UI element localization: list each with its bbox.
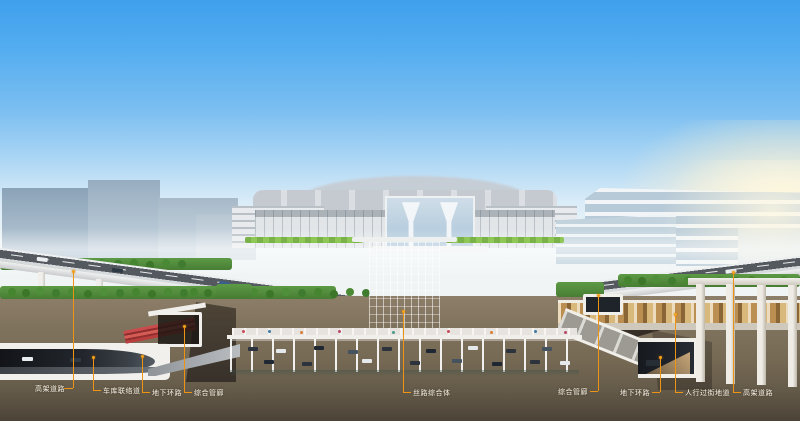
callout-line xyxy=(598,297,599,391)
callout-label: 人行过街地道 xyxy=(685,389,730,397)
utility-tunnel-box xyxy=(158,312,202,347)
callout-label: 地下环路 xyxy=(620,389,650,397)
green-roof xyxy=(245,237,363,243)
callout-label: 车库联络道 xyxy=(103,387,141,395)
callout-label: 高架道路 xyxy=(743,389,773,397)
callout-label: 地下环路 xyxy=(152,389,182,397)
callout-line xyxy=(403,392,411,393)
callout-line xyxy=(142,357,143,392)
underground-ring-road-tunnel xyxy=(0,343,170,380)
terraced-building-left xyxy=(239,237,369,334)
callout-line xyxy=(675,316,676,392)
glass-atrium xyxy=(369,242,440,334)
car-in-tunnel xyxy=(22,357,33,361)
underground-ring-road-tunnel-right xyxy=(638,338,698,378)
rendering-scene: 高架道路 车库联络道 地下环路 综合管廊 丝路综合体 综合管廊 地下环路 人行过… xyxy=(0,0,800,421)
callout-line xyxy=(184,327,185,392)
callout-line xyxy=(73,273,74,388)
callout-line xyxy=(142,392,150,393)
car-in-tunnel xyxy=(70,358,81,362)
callout-line xyxy=(652,392,660,393)
callout-label: 丝路综合体 xyxy=(413,389,451,397)
callout-label: 高架道路 xyxy=(35,385,65,393)
viaduct-pier xyxy=(696,284,705,382)
callout-line xyxy=(733,274,734,392)
viaduct-pier xyxy=(757,285,766,385)
callout-line xyxy=(590,391,598,392)
callout-label: 综合管廊 xyxy=(558,388,588,396)
terraced-building-right xyxy=(440,237,570,334)
underground-parking-level xyxy=(230,339,579,372)
callout-line xyxy=(184,392,192,393)
plaza-people xyxy=(242,330,245,333)
callout-line xyxy=(675,392,683,393)
car-in-tunnel xyxy=(646,360,661,366)
parking-floor-shadow xyxy=(230,370,579,376)
green-roof xyxy=(446,237,564,243)
callout-line xyxy=(660,358,661,392)
callout-line xyxy=(93,358,94,390)
callout-line xyxy=(64,388,73,389)
callout-label: 综合管廊 xyxy=(194,389,224,397)
utility-tunnel-entrance xyxy=(583,294,623,315)
station-city-complex xyxy=(232,232,577,372)
callout-line xyxy=(93,390,101,391)
callout-line xyxy=(403,313,404,392)
tunnel-roadway xyxy=(0,367,155,374)
callout-line xyxy=(733,392,741,393)
viaduct-pier xyxy=(788,285,797,387)
